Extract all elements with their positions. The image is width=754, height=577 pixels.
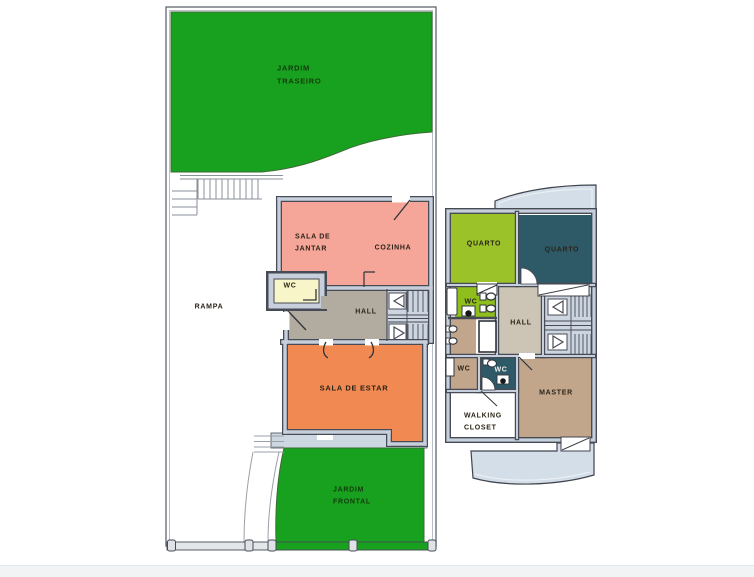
upper-floor-plan <box>446 185 596 484</box>
label-wc-suite: WC <box>464 299 477 306</box>
label-jardim-frontal-line2: FRONTAL <box>333 499 371 506</box>
floor-plan-image: JARDIM TRASEIRO SALA DE JANTAR COZINHA W… <box>0 0 754 577</box>
label-jardim-frontal-line1: JARDIM <box>333 487 364 494</box>
room-quarto-left <box>451 213 516 284</box>
label-master: MASTER <box>539 390 573 397</box>
front-fence <box>167 540 436 551</box>
floor-plan-drawing <box>0 0 754 577</box>
label-walking-closet-line1: WALKING <box>464 413 502 420</box>
room-jardim-frontal <box>276 448 424 542</box>
label-jardim-traseiro-line1: JARDIM <box>277 64 310 72</box>
label-hall-ground: HALL <box>355 309 376 316</box>
label-wc-mid: WC <box>494 367 507 374</box>
toilet-icon <box>465 310 471 316</box>
label-sala-jantar-line1: SALA DE <box>295 234 330 241</box>
label-wc-left: WC <box>457 366 470 373</box>
label-cozinha: COZINHA <box>375 245 412 252</box>
label-rampa: RAMPA <box>195 304 224 311</box>
room-sala-estar <box>285 341 425 444</box>
sink-icon <box>487 293 496 300</box>
label-hall-upper: HALL <box>510 320 531 327</box>
shower-icon <box>446 358 454 376</box>
sink-icon <box>449 338 457 344</box>
label-sala-estar: SALA DE ESTAR <box>320 384 389 392</box>
label-wc-ground: WC <box>283 283 296 290</box>
sink-icon <box>487 305 496 312</box>
room-wc-ground <box>266 271 328 311</box>
ground-floor-plan <box>166 7 436 551</box>
bottom-strip <box>0 565 754 577</box>
label-sala-jantar-line2: JANTAR <box>295 246 327 253</box>
room-master <box>518 356 593 437</box>
closet-door-panel <box>479 321 496 352</box>
label-quarto-left: QUARTO <box>467 241 501 248</box>
label-jardim-traseiro-line2: TRASEIRO <box>277 77 321 85</box>
label-quarto-right: QUARTO <box>545 247 579 254</box>
toilet-icon <box>500 378 506 384</box>
label-walking-closet-line2: CLOSET <box>464 425 497 432</box>
sink-icon <box>449 326 457 332</box>
shower-icon <box>447 288 457 315</box>
